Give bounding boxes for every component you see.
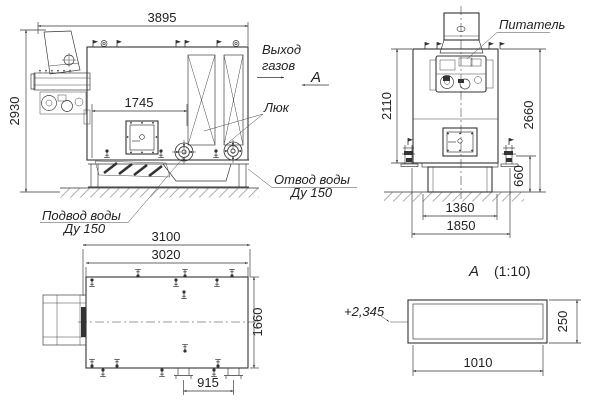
dim-660: 660 xyxy=(511,165,526,187)
boiler-drawing-svg: 3895 2930 1745 Выход газов А Люк Отвод в… xyxy=(0,0,600,400)
detail-title-letter: А xyxy=(468,263,479,280)
label-feeder: Питатель xyxy=(499,17,566,32)
top-body xyxy=(86,277,248,368)
dim-1010: 1010 xyxy=(464,355,493,370)
side-hatch xyxy=(126,121,158,154)
detail-elevation-mark: +2,345 xyxy=(344,304,408,322)
dim-3100: 3100 xyxy=(152,229,181,244)
side-feeder-assembly xyxy=(31,31,90,124)
front-view: 2110 2660 660 1360 1850 Питатель xyxy=(379,6,566,238)
label-hatch: Люк xyxy=(263,100,290,115)
section-letter: А xyxy=(310,69,321,86)
side-view: 3895 2930 1745 Выход газов А Люк Отвод в… xyxy=(7,10,357,236)
top-dim-depth: 1660 xyxy=(250,277,265,368)
technical-drawing-page: 3895 2930 1745 Выход газов А Люк Отвод в… xyxy=(0,0,600,400)
front-left-pipe xyxy=(401,138,418,167)
side-base xyxy=(88,160,249,187)
dim-2110: 2110 xyxy=(379,92,394,120)
front-hatch xyxy=(443,128,477,156)
side-drain-valves xyxy=(104,149,219,157)
dim-250: 250 xyxy=(555,311,570,333)
dim-3895: 3895 xyxy=(148,10,177,25)
detail-dim-width: 1010 xyxy=(413,345,543,376)
front-top-fittings xyxy=(425,42,505,49)
top-dim-body-width: 3020 xyxy=(86,247,248,277)
front-right-pipe xyxy=(501,138,518,167)
detail-title-scale: (1:10) xyxy=(494,263,531,279)
dim-2930: 2930 xyxy=(7,97,22,126)
dim-915: 915 xyxy=(197,375,219,390)
front-body xyxy=(413,49,498,163)
detail-a-view: А (1:10) +2,345 250 1010 xyxy=(344,263,581,376)
side-top-fittings xyxy=(93,40,239,47)
top-view: 3100 3020 1660 915 xyxy=(43,229,265,395)
dim-1850: 1850 xyxy=(447,218,476,233)
label-gas-outlet-line1: Выход xyxy=(262,42,301,57)
front-feeder-machine xyxy=(430,56,493,92)
elevation-value: +2,345 xyxy=(344,304,385,319)
front-base xyxy=(422,163,498,192)
label-gas-outlet-line2: газов xyxy=(262,58,295,73)
side-gas-ducts xyxy=(188,55,243,145)
side-ground xyxy=(60,188,259,198)
side-dim-width: 3895 xyxy=(38,10,248,46)
front-dim-body-height: 2110 xyxy=(379,49,422,163)
detail-dim-height: 250 xyxy=(549,300,581,343)
dim-1745: 1745 xyxy=(125,95,154,110)
top-feeder-attachment xyxy=(43,295,86,345)
top-dim-total-width: 3100 xyxy=(83,229,250,296)
dim-1360: 1360 xyxy=(446,200,475,215)
side-dim-height: 2930 xyxy=(7,30,60,192)
dim-2660: 2660 xyxy=(521,101,536,130)
dim-3020: 3020 xyxy=(152,247,181,262)
side-dim-inner: 1745 xyxy=(92,95,187,158)
detail-duct-section xyxy=(408,300,547,343)
top-bolts xyxy=(89,270,235,377)
front-hopper xyxy=(440,13,483,53)
front-dim-base-height: 660 xyxy=(511,156,536,192)
dim-1660: 1660 xyxy=(250,308,265,337)
label-water-inlet-line2: Ду 150 xyxy=(62,221,106,236)
